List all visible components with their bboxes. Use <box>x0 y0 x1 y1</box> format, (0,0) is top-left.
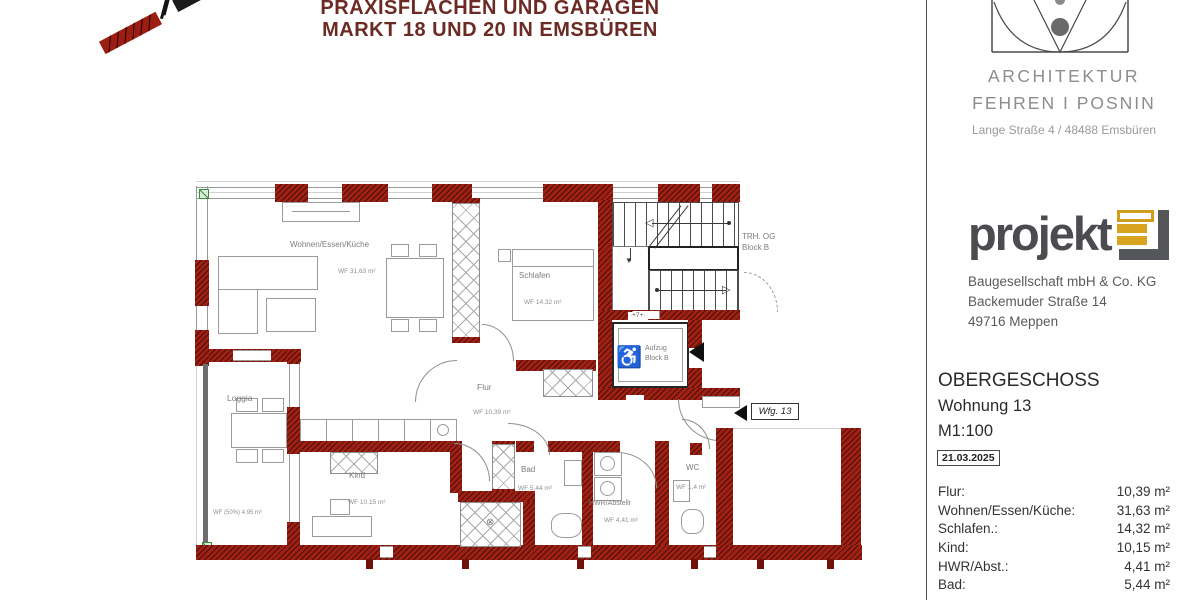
wall-segment <box>287 349 300 364</box>
dimension-tick <box>827 559 834 569</box>
area-label: HWR/Abst.: <box>938 559 1009 578</box>
dimension-tick <box>691 559 698 569</box>
door-swing <box>744 272 778 312</box>
door-swing <box>415 360 457 402</box>
wall-segment <box>582 441 593 547</box>
area-label: Wohnen/Essen/Küche: <box>938 503 1075 522</box>
wall-segment <box>275 184 308 202</box>
unit-tag: Wfg. 13 <box>751 403 799 420</box>
stair-landing <box>648 246 739 271</box>
area-value: 10,39 m² <box>1117 484 1170 503</box>
sheet-floor: OBERGESCHOSS <box>938 370 1100 392</box>
sideboard-line <box>292 211 350 212</box>
stair-flight-upper <box>612 202 739 247</box>
loggia-edge <box>203 364 208 554</box>
room-area-kind: WF 10,15 m² <box>348 499 386 507</box>
dryer-drum-icon <box>600 481 615 496</box>
entry-arrow-icon <box>689 342 704 362</box>
chair <box>419 244 437 257</box>
chair <box>391 244 409 257</box>
wall-segment <box>195 260 209 306</box>
wall-segment <box>287 522 300 547</box>
drawing-sheet: PRAXISFLÄCHEN UND GARAGEN MARKT 18 UND 2… <box>0 0 1200 600</box>
window-opening <box>704 546 716 558</box>
area-table: Flur:10,39 m² Wohnen/Essen/Küche:31,63 m… <box>938 484 1170 596</box>
dimension-tick <box>462 559 469 569</box>
developer-logo-text: projekt <box>968 206 1111 261</box>
window-opening <box>380 546 393 558</box>
window-line <box>196 181 740 182</box>
stair-arrow-icon: ▷ <box>722 283 730 296</box>
window-opening <box>578 546 591 558</box>
coffee-table <box>266 298 316 332</box>
cut-plan-fragment <box>88 0 218 55</box>
wall-segment <box>598 200 612 400</box>
wall-segment <box>287 441 453 452</box>
door-swing <box>508 423 550 455</box>
elevator-label: Aufzug <box>645 344 667 353</box>
area-row: Schlafen.:14,32 m² <box>938 521 1170 540</box>
counter-divider <box>352 420 353 441</box>
architect-logo <box>990 0 1130 54</box>
room-label-kind: Kind <box>349 471 365 480</box>
nightstand <box>498 249 511 262</box>
chair <box>236 449 258 463</box>
chair <box>262 398 284 412</box>
counter-divider <box>378 420 379 441</box>
sheet-date: 21.03.2025 <box>937 450 1000 466</box>
unit-tag-text: Wfg. 13 <box>759 406 792 417</box>
area-row: Bad:5,44 m² <box>938 577 1170 596</box>
stair-down-arrow-icon: ▼ <box>625 256 633 265</box>
stair-arrow-icon: ◁ <box>645 216 653 229</box>
architect-address: Lange Straße 4 / 48488 Emsbüren <box>958 123 1170 137</box>
sink <box>564 460 582 486</box>
stair-direction-line <box>656 290 726 291</box>
elevator-dimension: ·+7+· <box>628 312 648 320</box>
drain-icon: ⊗ <box>486 517 494 528</box>
door-opening <box>626 395 644 400</box>
area-label: Kind: <box>938 540 969 559</box>
area-label: Schlafen.: <box>938 521 998 540</box>
counter-divider <box>430 420 431 441</box>
chair <box>419 319 437 332</box>
bed <box>512 249 594 321</box>
sink-symbol <box>437 424 449 436</box>
wall-segment <box>716 428 733 556</box>
developer-city: 49716 Meppen <box>968 314 1058 329</box>
room-label-flur: Flur <box>477 383 492 392</box>
sofa <box>218 256 318 290</box>
area-row: HWR/Abst.:4,41 m² <box>938 559 1170 578</box>
room-area-flur: WF 10,39 m² <box>473 409 511 417</box>
room-label-loggia: Loggia <box>227 394 253 403</box>
wall-segment <box>688 368 702 388</box>
room-area-wohnen: WF 31,63 m² <box>338 268 376 276</box>
area-value: 10,15 m² <box>1117 540 1170 559</box>
sideboard <box>282 202 360 222</box>
developer-company: Baugesellschaft mbH & Co. KG <box>968 274 1156 289</box>
wall-segment <box>342 184 388 202</box>
area-label: Bad: <box>938 577 966 596</box>
sheet-unit: Wohnung 13 <box>938 397 1031 416</box>
door-swing <box>617 452 657 488</box>
room-label-hwr: HWR/Abstellr <box>589 499 631 508</box>
wall-segment <box>598 310 740 320</box>
developer-logo-icon <box>1117 210 1171 260</box>
window-line <box>196 366 197 556</box>
area-label: Flur: <box>938 484 965 503</box>
counter-divider <box>404 420 405 441</box>
wall-segment <box>452 337 480 343</box>
stairwell-label: TRH. OG <box>742 232 775 241</box>
area-value: 31,63 m² <box>1117 503 1170 522</box>
bed-line <box>513 266 593 267</box>
room-label-schlafen: Schlafen <box>519 271 550 280</box>
title-block-separator <box>926 0 927 600</box>
room-area-schlafen: WF 14,32 m² <box>524 299 562 307</box>
room-label-wc: WC <box>686 463 699 472</box>
chair <box>391 319 409 332</box>
sheet-scale: M1:100 <box>938 422 993 441</box>
architect-name-line1: ARCHITEKTUR <box>958 66 1170 87</box>
stairwell-label: Block B <box>742 243 769 252</box>
chair <box>262 449 284 463</box>
wardrobe <box>543 369 593 397</box>
room-area-bad: WF 5,44 m² <box>518 485 552 493</box>
room-area-wc: WF 1,4 m² <box>676 484 706 492</box>
washer-drum-icon <box>600 456 615 471</box>
door-swing <box>482 324 514 361</box>
loggia-table <box>231 413 287 448</box>
wall-segment <box>655 441 669 547</box>
area-row: Kind:10,15 m² <box>938 540 1170 559</box>
project-title-line1: PRAXISFLÄCHEN UND GARAGEN <box>230 0 750 19</box>
chair <box>330 499 350 515</box>
door-swing <box>454 443 490 481</box>
stair-direction-line <box>652 223 730 224</box>
dimension-tick <box>577 559 584 569</box>
wall-segment <box>658 184 700 202</box>
corridor-line <box>733 428 841 429</box>
area-value: 14,32 m² <box>1117 521 1170 540</box>
wall-segment <box>195 330 209 366</box>
dimension-tick <box>366 559 373 569</box>
toilet <box>551 513 582 538</box>
room-area-hwr: WF 4,41 m² <box>604 517 638 525</box>
entry-arrow-icon <box>734 405 747 421</box>
wall-segment <box>712 184 740 202</box>
column-marker <box>199 189 209 199</box>
area-value: 4,41 m² <box>1124 559 1170 578</box>
room-area-loggia: WF (50%) 4,95 m² <box>213 509 262 517</box>
area-row: Flur:10,39 m² <box>938 484 1170 503</box>
wheelchair-icon: ♿ <box>616 346 642 370</box>
stair-start-dot <box>655 288 659 292</box>
window-opening <box>233 350 271 361</box>
counter-divider <box>326 420 327 441</box>
elevator-label: Block B <box>645 354 669 363</box>
room-label-bad: Bad <box>521 465 535 474</box>
dining-table <box>386 258 444 318</box>
dimension-tick <box>757 559 764 569</box>
stair-start-dot <box>727 221 731 225</box>
area-row: Wohnen/Essen/Küche:31,63 m² <box>938 503 1170 522</box>
toilet <box>681 509 704 534</box>
insulated-wall <box>452 203 480 339</box>
architect-name-line2: FEHREN I POSNIN <box>958 93 1170 114</box>
project-title-line2: MARKT 18 UND 20 IN EMSBÜREN <box>230 19 750 41</box>
developer-street: Backemuder Straße 14 <box>968 294 1107 309</box>
area-value: 5,44 m² <box>1124 577 1170 596</box>
room-label-wohnen: Wohnen/Essen/Küche <box>290 240 369 249</box>
wall-segment <box>196 545 862 560</box>
wall-segment <box>841 428 861 546</box>
desk <box>312 516 372 537</box>
